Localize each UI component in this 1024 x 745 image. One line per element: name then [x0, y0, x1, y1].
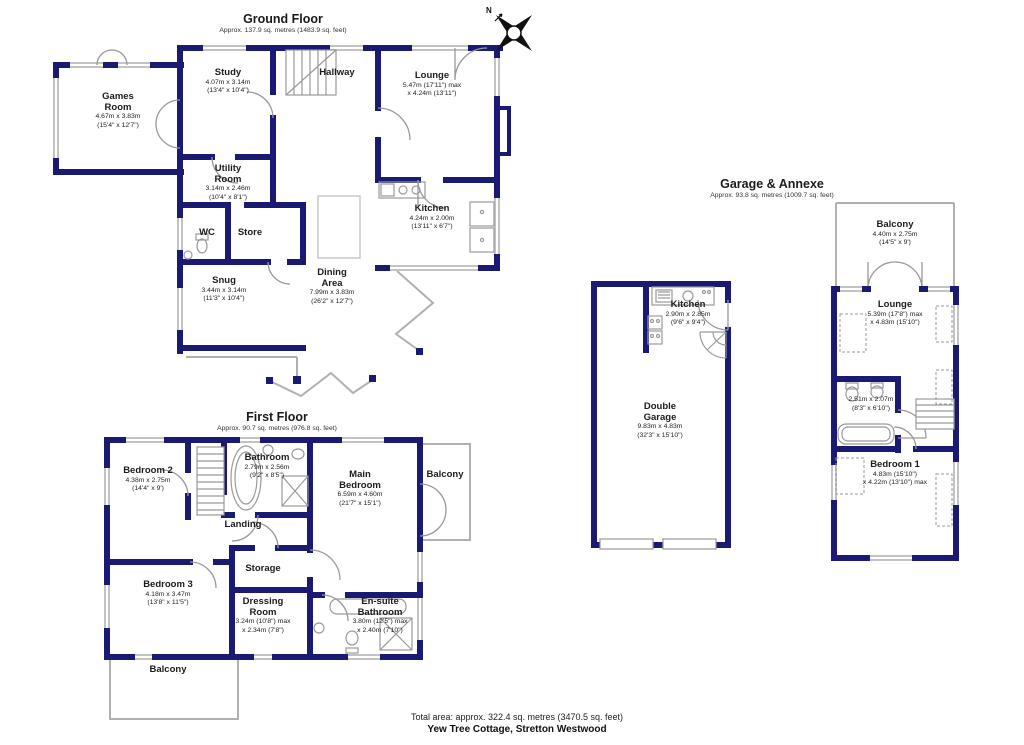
first-floor-title-text: First Floor [177, 410, 377, 424]
room-label-hallway: Hallway [287, 68, 387, 79]
room-label-bedroom-2: Bedroom 2 4.38m x 2.75m (14'4" x 9') [98, 466, 198, 494]
first-floor-title: First Floor Approx. 90.7 sq. metres (976… [177, 410, 377, 432]
room-label-store: Store [225, 228, 275, 239]
property-name-text: Yew Tree Cottage, Stretton Westwood [317, 724, 717, 735]
garage-annexe-area: Approx. 93.8 sq. metres (1009.7 sq. feet… [672, 192, 872, 199]
room-label-annexe-bathroom: 2.51m x 2.07m (8'3" x 6'10") [826, 396, 916, 414]
ground-floor-title: Ground Floor Approx. 137.9 sq. metres (1… [183, 12, 383, 34]
room-label-kitchen: Kitchen 4.24m x 2.00m (13'11" x 6'7") [377, 204, 487, 232]
room-label-bathroom: Bathroom 2.79m x 2.56m (9'2" x 8'5") [217, 453, 317, 481]
room-label-bedroom-3: Bedroom 3 4.18m x 3.47m (13'8" x 11'5") [118, 580, 218, 608]
floorplan-page: { "property": { "footer_line1": "Total a… [0, 0, 1024, 745]
garage-door-icon [663, 539, 716, 549]
first-floor-area: Approx. 90.7 sq. metres (976.8 sq. feet) [177, 425, 377, 432]
room-label-annexe-kitchen: Kitchen 2.90m x 2.85m (9'6" x 9'4") [640, 300, 736, 328]
stairs-icon [700, 332, 726, 358]
garage-annexe-title: Garage & Annexe Approx. 93.8 sq. metres … [672, 177, 872, 199]
room-label-annexe-lounge: Lounge 5.39m (17'8") max x 4.83m (15'10"… [840, 300, 950, 328]
room-label-dining-area: Dining Area 7.99m x 3.83m (26'2" x 12'7"… [282, 268, 382, 307]
room-label-balcony-right: Balcony [410, 470, 480, 481]
room-label-wc: WC [192, 228, 222, 239]
total-area-text: Total area: approx. 322.4 sq. metres (34… [317, 712, 717, 722]
room-label-study: Study 4.07m x 3.14m (13'4" x 10'4") [178, 68, 278, 96]
room-label-games-room: Games Room 4.67m x 3.83m (15'4" x 12'7") [70, 92, 166, 131]
footer: Total area: approx. 322.4 sq. metres (34… [317, 712, 717, 735]
room-label-balcony-bottom: Balcony [118, 665, 218, 676]
room-label-lounge: Lounge 5.47m (17'11") max x 4.24m (13'11… [377, 71, 487, 99]
garage-annexe-title-text: Garage & Annexe [672, 177, 872, 191]
room-label-storage: Storage [213, 564, 313, 575]
room-label-annexe-balcony: Balcony 4.40m x 2.75m (14'5" x 9') [845, 220, 945, 248]
dining-table-icon [318, 196, 360, 258]
room-label-main-bedroom: Main Bedroom 6.59m x 4.60m (21'7" x 15'1… [315, 470, 405, 509]
room-label-bedroom-1: Bedroom 1 4.83m (15'10") x 4.22m (13'10"… [840, 460, 950, 488]
garage-annexe-plan [594, 203, 956, 558]
ground-floor-area: Approx. 137.9 sq. metres (1483.9 sq. fee… [183, 27, 383, 34]
garage-door-icon [600, 539, 653, 549]
compass-north-label: N [486, 6, 492, 15]
room-label-utility-room: Utility Room 3.14m x 2.46m (10'4" x 8'1"… [183, 164, 273, 203]
room-label-ensuite-bathroom: En-suite Bathroom 3.80m (12'5") max x 2.… [330, 597, 430, 636]
room-label-snug: Snug 3.44m x 3.14m (11'3" x 10'4") [174, 276, 274, 304]
room-label-dressing-room: Dressing Room 3.24m (10'8") max x 2.34m … [213, 597, 313, 636]
ground-floor-title-text: Ground Floor [183, 12, 383, 26]
room-label-double-garage: Double Garage 9.83m x 4.83m (32'3" x 15'… [620, 402, 700, 441]
room-label-landing: Landing [193, 520, 293, 531]
compass-icon [495, 14, 532, 51]
stairs-icon [916, 399, 954, 429]
